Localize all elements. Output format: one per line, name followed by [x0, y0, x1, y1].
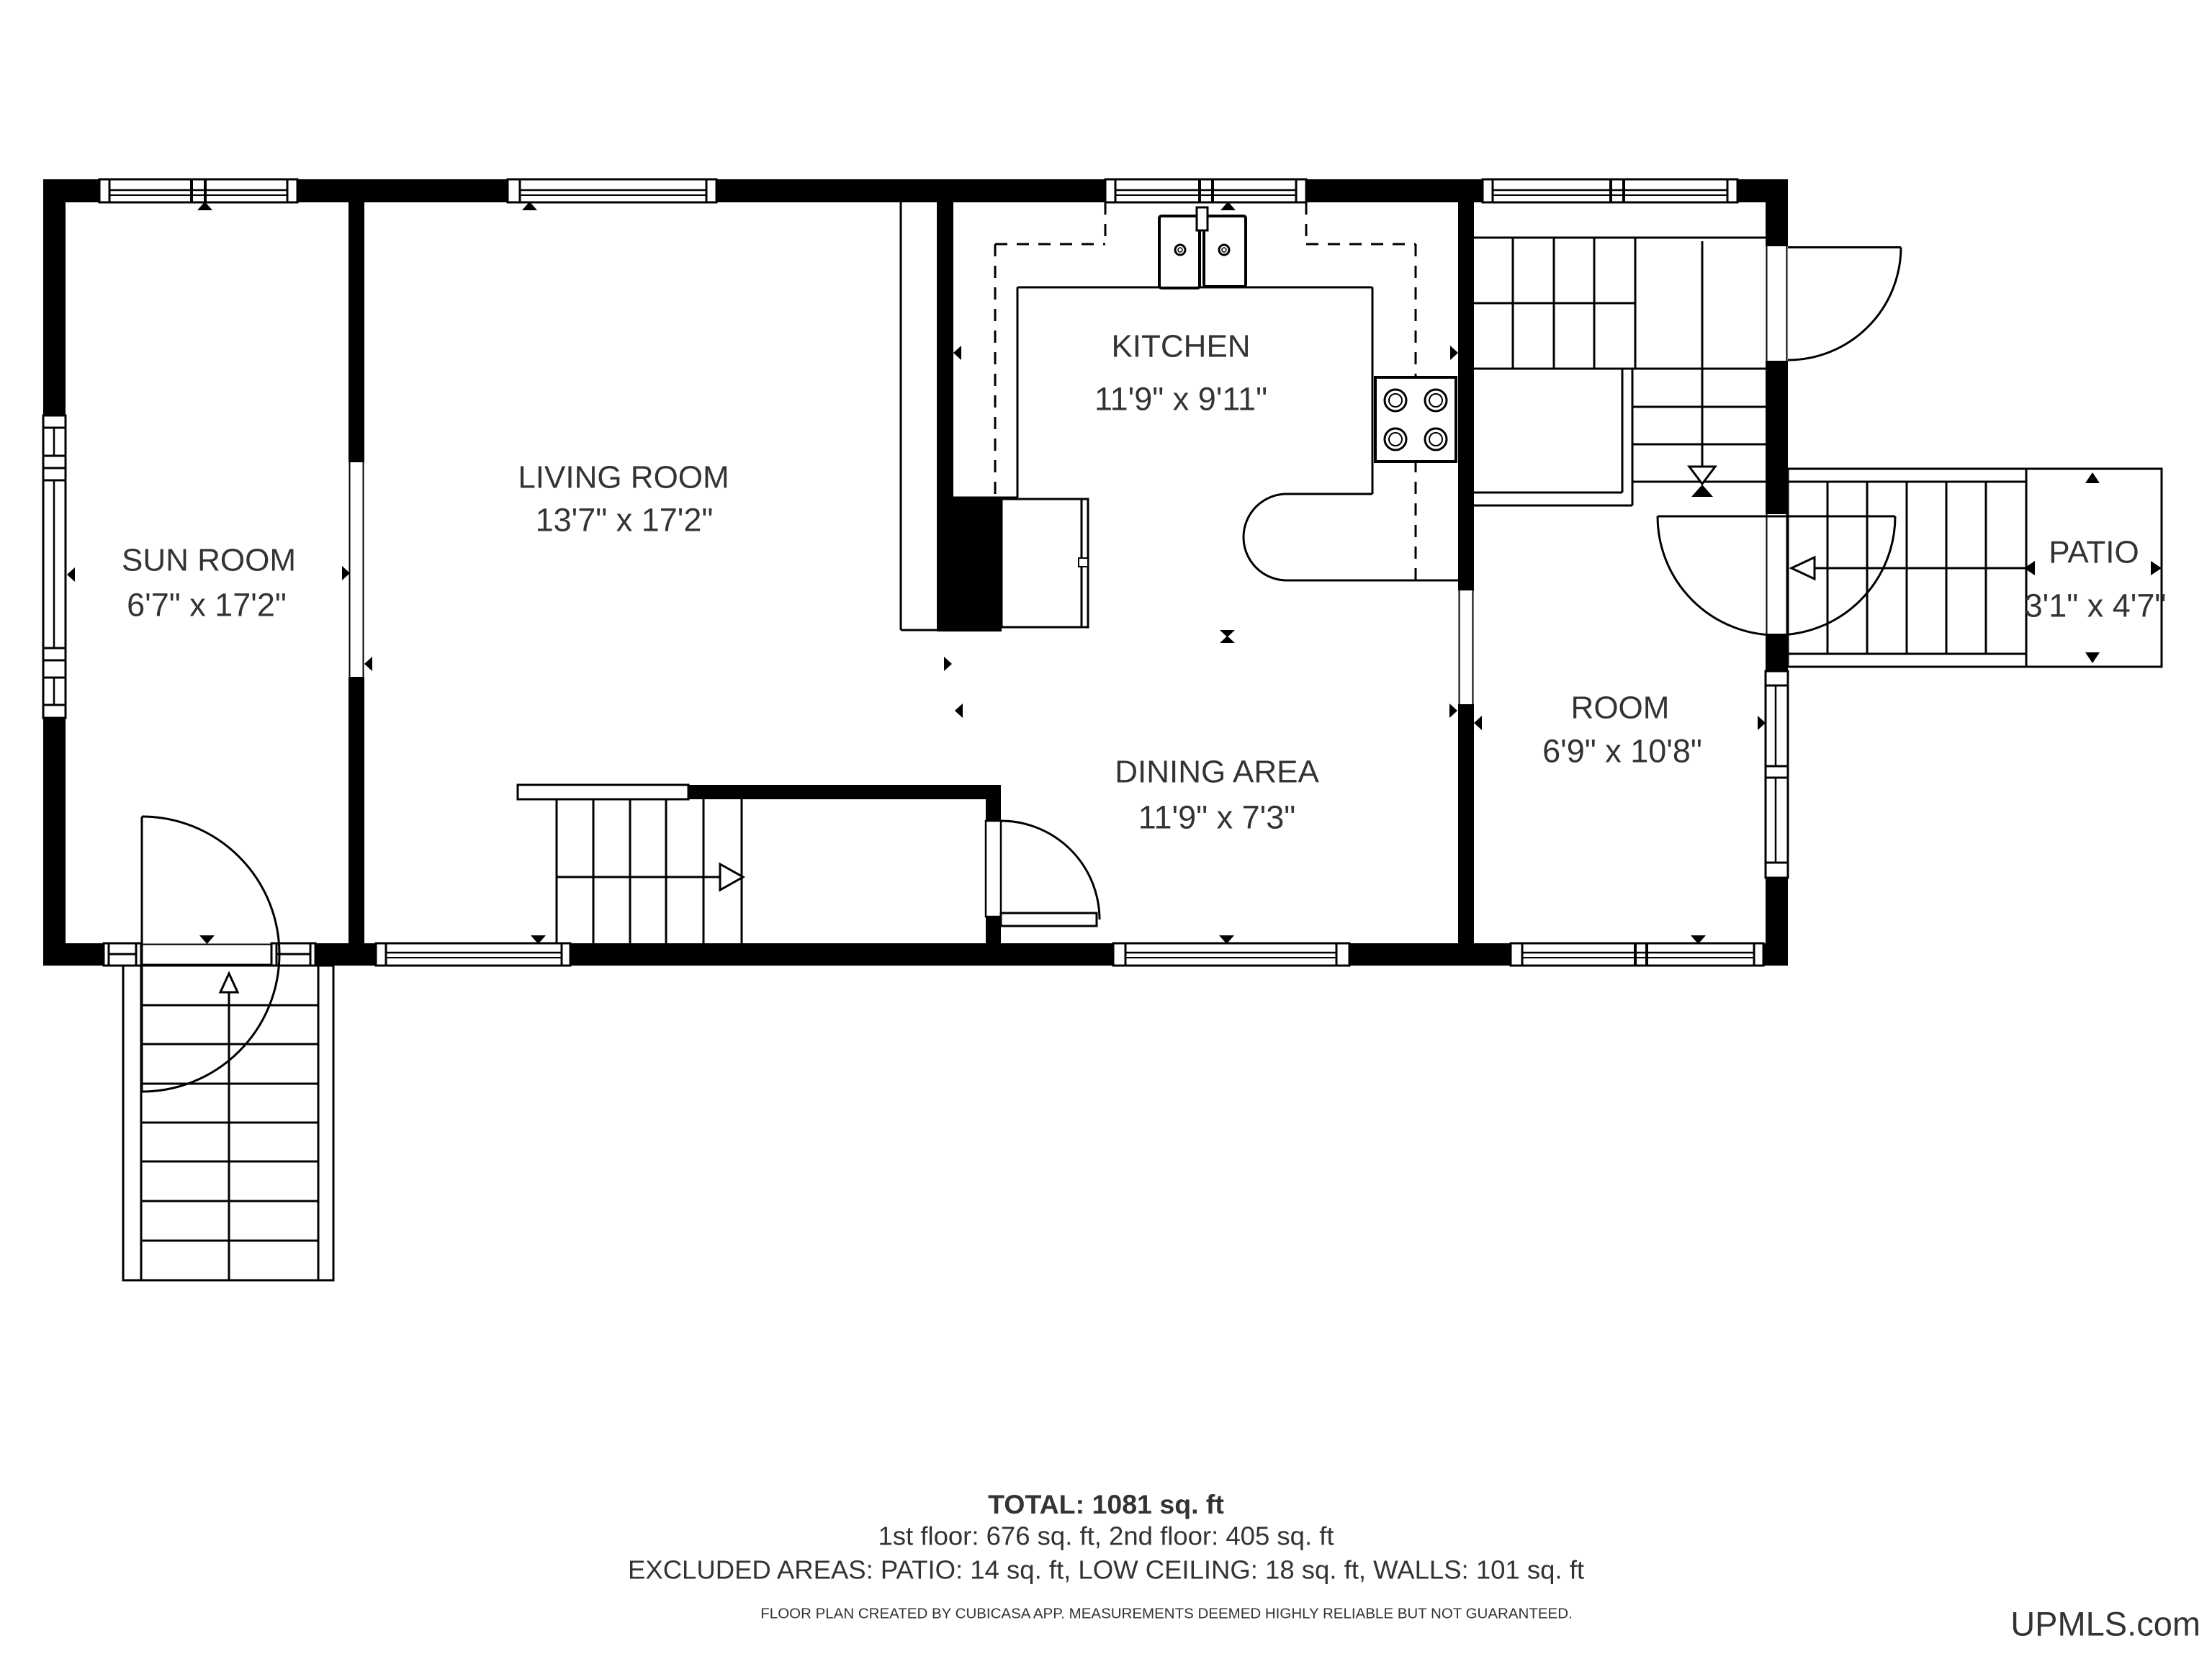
svg-text:PATIO: PATIO: [2049, 535, 2139, 570]
svg-text:1st floor: 676 sq. ft, 2nd flo: 1st floor: 676 sq. ft, 2nd floor: 405 sq…: [878, 1521, 1334, 1551]
svg-text:13'7" x 17'2": 13'7" x 17'2": [536, 502, 714, 539]
svg-text:3'1" x 4'7": 3'1" x 4'7": [2025, 588, 2167, 624]
svg-text:UPMLS.com: UPMLS.com: [2010, 1605, 2200, 1643]
svg-text:KITCHEN: KITCHEN: [1111, 329, 1250, 364]
svg-text:LIVING ROOM: LIVING ROOM: [518, 460, 729, 495]
svg-text:6'9" x 10'8": 6'9" x 10'8": [1542, 733, 1702, 770]
svg-text:TOTAL: 1081 sq. ft: TOTAL: 1081 sq. ft: [988, 1489, 1224, 1519]
svg-text:SUN ROOM: SUN ROOM: [122, 543, 296, 578]
svg-text:11'9" x 7'3": 11'9" x 7'3": [1138, 799, 1295, 836]
svg-text:ROOM: ROOM: [1571, 691, 1670, 726]
svg-text:EXCLUDED AREAS: PATIO: 14 sq.: EXCLUDED AREAS: PATIO: 14 sq. ft, LOW CE…: [628, 1555, 1584, 1585]
svg-text:11'9" x 9'11": 11'9" x 9'11": [1094, 381, 1267, 418]
svg-text:6'7" x 17'2": 6'7" x 17'2": [127, 587, 287, 624]
svg-text:DINING AREA: DINING AREA: [1115, 755, 1319, 790]
svg-text:FLOOR PLAN CREATED BY CUBICASA: FLOOR PLAN CREATED BY CUBICASA APP. MEAS…: [760, 1606, 1572, 1622]
